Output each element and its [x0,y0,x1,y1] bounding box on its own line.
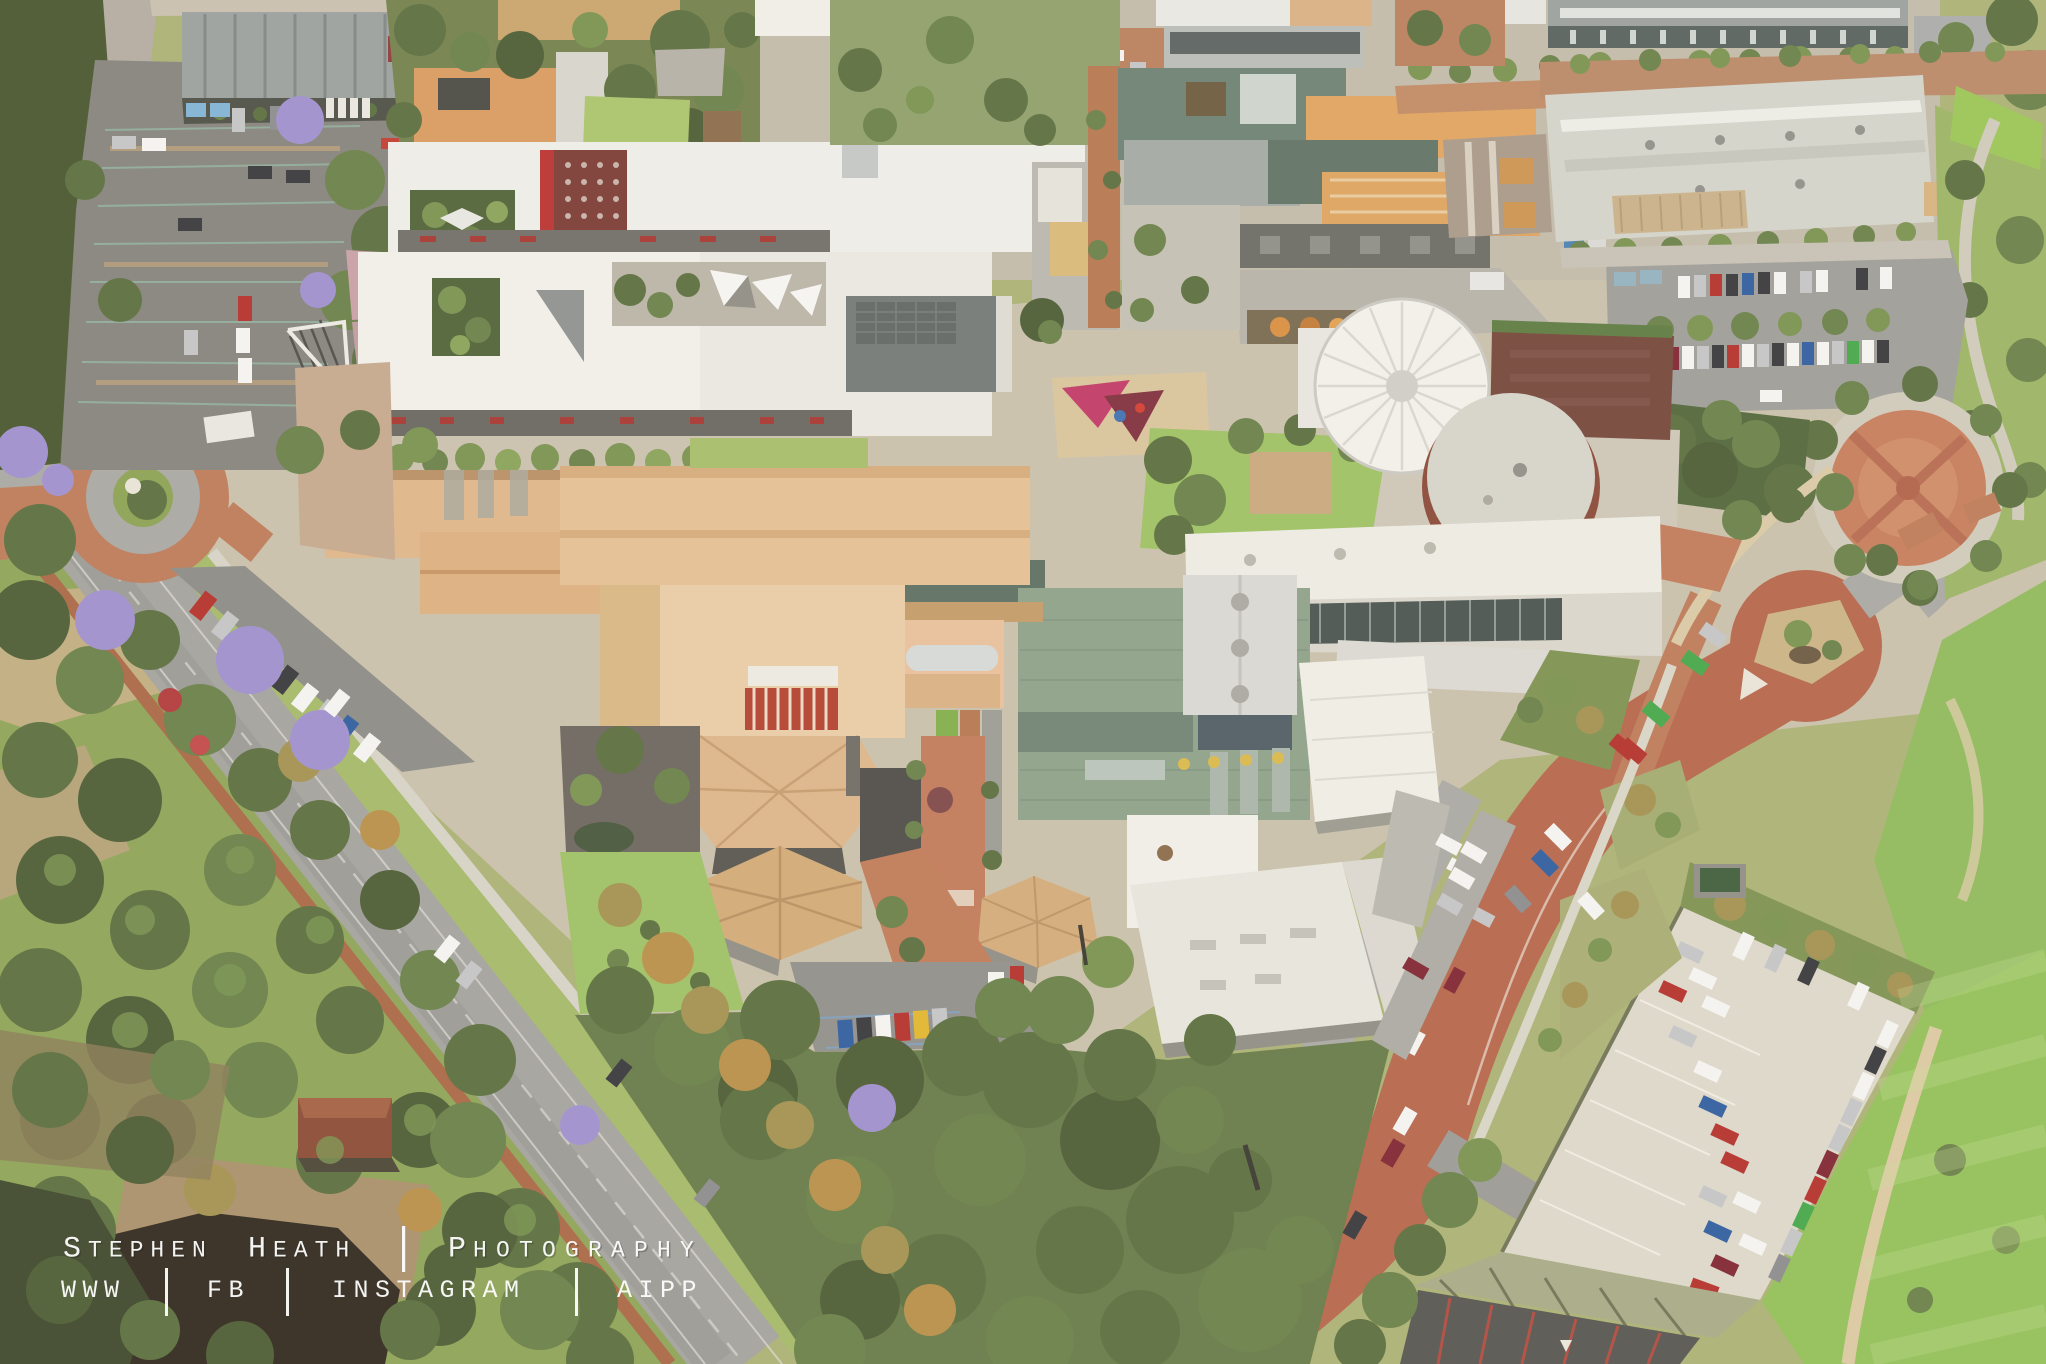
svg-text:STEPHEN: STEPHEN [63,1233,213,1267]
svg-text:HEATH: HEATH [248,1233,356,1267]
svg-text:WWW: WWW [61,1276,126,1305]
svg-text:AIPP: AIPP [617,1276,703,1305]
svg-text:FB: FB [207,1276,250,1305]
svg-text:PHOTOGRAPHY: PHOTOGRAPHY [448,1233,703,1267]
svg-text:INSTAGRAM: INSTAGRAM [332,1276,526,1305]
